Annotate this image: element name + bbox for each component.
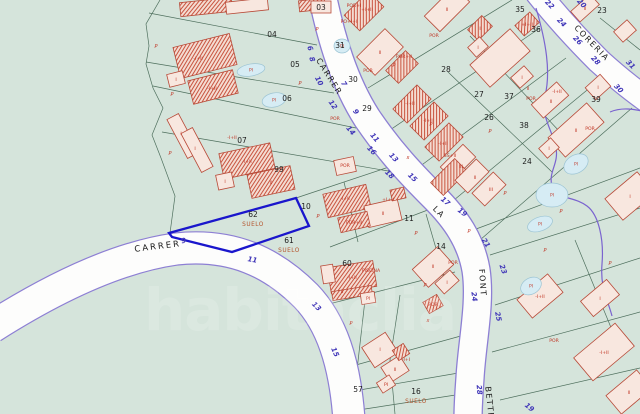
- building-label: -I+II: [552, 89, 562, 95]
- building-label: II: [474, 175, 477, 181]
- building-label: II: [432, 264, 435, 270]
- map-mark: P: [154, 44, 157, 50]
- map-mark: P: [316, 214, 319, 220]
- building-label: I: [548, 146, 549, 152]
- building-label: POR: [363, 68, 373, 74]
- building-label: III: [489, 187, 493, 193]
- building-label: POR: [549, 338, 559, 344]
- parcel-number-62: 62: [248, 210, 258, 219]
- map-mark: P: [315, 27, 318, 33]
- watermark-text: habitaclia: [144, 276, 456, 344]
- map-canvas: PIPIPIPIPIPIPI -I+III-I+IIII-I+II-I+IIII…: [0, 0, 640, 414]
- parcel-number-16: 16: [411, 387, 421, 396]
- cadastral-map: PIPIPIPIPIPIPI -I+III-I+IIII-I+II-I+IIII…: [0, 0, 640, 414]
- building-label: -I+II: [535, 294, 545, 300]
- building-label: -I+II: [227, 135, 237, 141]
- street-number: 28: [475, 385, 484, 396]
- parcel-number-24: 24: [522, 157, 532, 166]
- parcel-number-14: 14: [436, 242, 446, 251]
- building-label: II: [270, 180, 273, 186]
- building-label: POR+I: [347, 3, 362, 9]
- parcel-number-10: 10: [301, 202, 311, 211]
- map-mark: P: [168, 151, 171, 157]
- parcel-number-36: 36: [531, 25, 541, 34]
- parcel-number-37: 37: [504, 92, 514, 101]
- building-label: I: [479, 26, 480, 32]
- suelo-label: SUELO: [278, 248, 300, 254]
- pool-label: PI: [538, 222, 542, 227]
- map-mark: P: [559, 209, 562, 215]
- parcel-number-07: 07: [237, 136, 247, 145]
- suelo-label: SUELO: [242, 222, 264, 228]
- map-mark: P: [429, 122, 432, 128]
- map-mark: P: [467, 229, 470, 235]
- parcel-number-23: 23: [597, 6, 607, 15]
- building-label: I: [477, 45, 478, 51]
- building-label: POR: [448, 260, 458, 266]
- pool-label: PI: [574, 162, 578, 167]
- building-label: II: [628, 390, 631, 396]
- parcel-number-26: 26: [484, 113, 494, 122]
- building-label: I: [180, 131, 181, 137]
- building-label: POR: [526, 96, 536, 102]
- map-mark: P: [543, 248, 546, 254]
- building-label: PO+I+I: [341, 19, 358, 25]
- building-label: I: [194, 146, 195, 152]
- building-label: I: [224, 179, 225, 185]
- building-label: I: [175, 77, 176, 83]
- parcel-number-05: 05: [290, 60, 300, 69]
- building-label: -I+II: [340, 196, 350, 202]
- building-label: -I+II: [207, 86, 217, 92]
- building-label: I: [597, 85, 598, 91]
- map-mark: P: [170, 92, 173, 98]
- pool-label: PI: [249, 68, 253, 73]
- map-mark: P: [392, 63, 395, 69]
- building-label: PI: [384, 382, 388, 388]
- building-label: PISCINA: [362, 268, 381, 274]
- parcel-number-30: 30: [348, 75, 358, 84]
- building-label: II: [446, 7, 449, 13]
- building-label: SS+II: [444, 153, 456, 159]
- building-label: POR: [585, 126, 595, 132]
- pool-label: PI: [529, 284, 533, 289]
- street-number: 11: [247, 255, 258, 265]
- building-label: +I+II: [382, 197, 394, 203]
- parcel-number-60: 60: [342, 259, 352, 268]
- building-label: II: [575, 128, 578, 134]
- building-label: II: [394, 367, 397, 373]
- building-label: POR+II: [396, 54, 412, 60]
- street-number: 24: [469, 291, 478, 302]
- parcel-number-61: 61: [284, 236, 294, 245]
- building-label: I: [379, 347, 380, 353]
- parcel-number-39: 39: [591, 95, 601, 104]
- parcel-number-03: 03: [316, 3, 326, 12]
- building-label: I: [599, 296, 600, 302]
- building-label: I: [521, 75, 522, 81]
- building-label: I: [629, 194, 630, 200]
- building-label: -I+II: [242, 159, 252, 165]
- parcel-number-11: 11: [404, 214, 414, 223]
- building-label: POR: [429, 33, 439, 39]
- parcel-number-99: 99: [274, 165, 284, 174]
- parcel-number-29: 29: [362, 104, 372, 113]
- parcel-number-04: 04: [267, 30, 277, 39]
- building-label: +I+II: [361, 7, 373, 13]
- parcel-number-27: 27: [474, 90, 484, 99]
- parcel-number-38: 38: [519, 121, 529, 130]
- map-mark: P: [608, 261, 611, 267]
- building-label: II: [527, 86, 530, 92]
- suelo-label: SUELO: [405, 399, 427, 405]
- building-label: POR: [340, 163, 350, 169]
- pool-label: PI: [550, 193, 554, 198]
- parcel-number-57: 57: [353, 385, 363, 394]
- building-label: POR+II: [346, 220, 362, 226]
- map-mark: P: [503, 191, 506, 197]
- parcel-number-06: 06: [282, 94, 292, 103]
- building-label: -I+II: [438, 141, 448, 147]
- building-label: II: [382, 211, 385, 217]
- parcel-number-35: 35: [515, 5, 525, 14]
- building-label: III: [459, 164, 463, 170]
- building-label: -I+I: [402, 357, 410, 363]
- map-mark: P: [298, 81, 301, 87]
- building-label: II: [550, 99, 553, 105]
- building-label: -I+II: [599, 350, 609, 356]
- pool-label: PI: [272, 98, 276, 103]
- building-label: -I+II: [405, 101, 415, 107]
- building-label: II: [379, 50, 382, 56]
- map-mark: P: [414, 231, 417, 237]
- map-mark: P: [488, 129, 491, 135]
- map-mark: x: [406, 155, 410, 161]
- parcel-number-31: 31: [335, 41, 345, 50]
- building-label: -I+II: [193, 56, 203, 62]
- parcel-number-28: 28: [441, 65, 451, 74]
- building-label: POR: [330, 116, 340, 122]
